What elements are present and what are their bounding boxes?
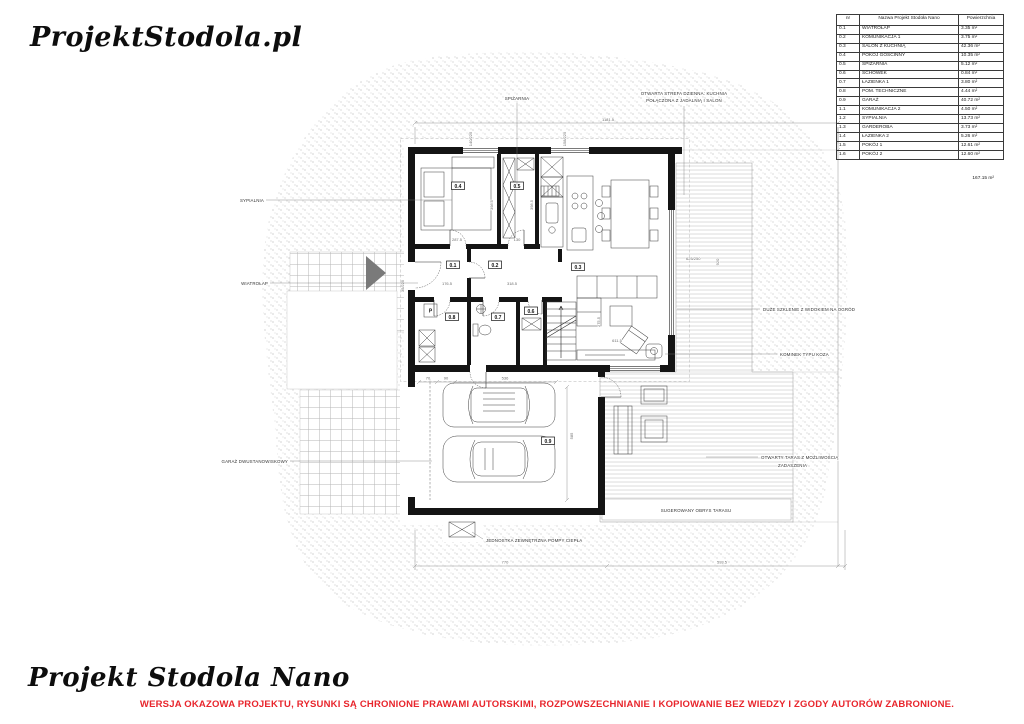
callout-taras-line1: OTWARTY TARAS Z MOŻLIWOŚCIĄ: [761, 455, 838, 460]
table-row: 0.6SCHOWEK0.84 m²: [837, 70, 1004, 79]
header-nr: nr: [837, 15, 860, 26]
cell-nr: 0.6: [837, 70, 860, 79]
cell-nr: 1.3: [837, 124, 860, 133]
cell-name: SPIŻARNIA: [860, 61, 959, 70]
footer-project-logo: Projekt Stodola Nano: [28, 663, 350, 693]
cell-name: POKÓJ GOŚCINNY: [860, 52, 959, 61]
header-name: Nazwa Projekt Stodoła Nano: [860, 15, 959, 26]
dim-room-3985-b: 398.5: [529, 199, 534, 210]
dim-window-b: 158/225: [562, 131, 567, 146]
cell-name: KOMUNIKACJA 2: [860, 106, 959, 115]
cell-area: 13.73 m²: [959, 115, 1004, 124]
cell-nr: 0.1: [837, 25, 860, 34]
table-row: 1.6POKÓJ 212.60 m²: [837, 151, 1004, 160]
total-area: 167.15 m²: [836, 176, 998, 181]
dim-garage-536: 536: [502, 376, 509, 381]
cell-area: 12.61 m²: [959, 142, 1004, 151]
table-row: 0.7ŁAZIENKA 13.80 m²: [837, 79, 1004, 88]
dim-garage-70: 70: [426, 376, 431, 381]
cell-nr: 0.3: [837, 43, 860, 52]
dim-room-3985-a: 398.5: [489, 199, 494, 210]
cell-area: 5.12 m²: [959, 61, 1004, 70]
dim-room-2875: 287.5: [452, 237, 463, 242]
table-row: 0.9GARAŻ40.72 m²: [837, 97, 1004, 106]
room-number-01: 0.1: [450, 263, 457, 269]
dim-garage-90: 90: [444, 376, 449, 381]
callout-taras-line2: ZADASZENIA: [778, 463, 807, 468]
dim-room-2755: 275.5: [596, 316, 601, 327]
cell-nr: 1.1: [837, 106, 860, 115]
cell-nr: 0.8: [837, 88, 860, 97]
cell-name: SALON Z KUCHNIĄ: [860, 43, 959, 52]
table-row: 0.2KOMUNIKACJA 13.75 m²: [837, 34, 1004, 43]
table-row: 1.5POKÓJ 112.61 m²: [837, 142, 1004, 151]
dim-room-6115: 611.5: [612, 338, 622, 343]
callout-pompa-ciepla: JEDNOSTKA ZEWNĘTRZNA POMPY CIEPŁA: [486, 538, 582, 543]
callout-strefa-line1: OTWARTA STREFA DZIENNA: KUCHNIA: [641, 91, 728, 96]
cell-area: 3.35 m²: [959, 25, 1004, 34]
cell-name: POM. TECHNICZNE: [860, 88, 959, 97]
dim-room-3185: 318.5: [507, 281, 518, 286]
cell-nr: 1.4: [837, 133, 860, 142]
room-number-06: 0.6: [528, 309, 535, 315]
room-number-07: 0.7: [495, 315, 502, 321]
cell-nr: 0.5: [837, 61, 860, 70]
header-area: Powierzchnia: [959, 15, 1004, 26]
callout-obrys-tarasu: SUGEROWANY OBRYS TARASU: [661, 508, 732, 513]
cell-area: 0.84 m²: [959, 70, 1004, 79]
cell-nr: 1.5: [837, 142, 860, 151]
cell-nr: 0.9: [837, 97, 860, 106]
cell-nr: 0.7: [837, 79, 860, 88]
dim-garage-585: 585: [569, 432, 574, 439]
callout-sypialnia: SYPIALNIA: [240, 198, 264, 203]
cell-nr: 0.2: [837, 34, 860, 43]
cell-area: 12.60 m²: [959, 151, 1004, 160]
cell-area: 3.80 m²: [959, 79, 1004, 88]
dim-terrace-length: 920: [715, 258, 720, 265]
table-row: 1.2SYPIALNIA13.73 m²: [837, 115, 1004, 124]
callout-kominek: KOMINEK TYPU KOZA: [780, 352, 829, 357]
cell-name: SYPIALNIA: [860, 115, 959, 124]
callout-garaz-dwustanowiskowy: GARAŻ DWUSTANOWISKOWY: [222, 459, 289, 464]
table-row: 1.1KOMUNIKACJA 24.50 m²: [837, 106, 1004, 115]
table-row: 0.8POM. TECHNICZNE4.44 m²: [837, 88, 1004, 97]
room-number-03: 0.3: [575, 265, 582, 271]
callout-szklenie: DUŻE SZKLENIE Z WIDOKIEM NA OGRÓD: [763, 307, 855, 312]
cell-nr: 0.4: [837, 52, 860, 61]
cell-name: GARAŻ: [860, 97, 959, 106]
cell-nr: 1.2: [837, 115, 860, 124]
cell-area: 40.72 m²: [959, 97, 1004, 106]
cell-name: KOMUNIKACJA 1: [860, 34, 959, 43]
cell-name: WIATROŁAP: [860, 25, 959, 34]
cell-name: POKÓJ 1: [860, 142, 959, 151]
dim-window-a: 140/225: [468, 131, 473, 146]
cell-area: 4.44 m²: [959, 88, 1004, 97]
dim-room-1765: 176.5: [442, 281, 453, 286]
room-number-08: 0.8: [449, 315, 456, 321]
room-number-02: 0.2: [492, 263, 499, 269]
table-header-row: nr Nazwa Projekt Stodoła Nano Powierzchn…: [837, 15, 1004, 26]
table-row: 0.5SPIŻARNIA5.12 m²: [837, 61, 1004, 70]
cell-area: 3.73 m²: [959, 124, 1004, 133]
cell-name: POKÓJ 2: [860, 151, 959, 160]
cell-name: ŁAZIENKA 2: [860, 133, 959, 142]
table-row: 0.3SALON Z KUCHNIĄ42.36 m²: [837, 43, 1004, 52]
cell-name: SCHOWEK: [860, 70, 959, 79]
dim-room-130: 130: [514, 237, 521, 242]
table-row: 1.4ŁAZIENKA 25.26 m²: [837, 133, 1004, 142]
dim-entry-door: 35/225: [400, 279, 405, 292]
cell-area: 3.75 m²: [959, 34, 1004, 43]
cell-nr: 1.6: [837, 151, 860, 160]
callout-spizarnia: SPIŻARNIA: [505, 96, 530, 101]
room-schedule-table: nr Nazwa Projekt Stodoła Nano Powierzchn…: [836, 14, 1004, 160]
cell-area: 10.35 m²: [959, 52, 1004, 61]
room-number-09: 0.9: [545, 439, 552, 445]
dim-total-width: 1181.5: [602, 117, 615, 122]
copyright-warning: WERSJA OKAZOWA PROJEKTU, RYSUNKI SĄ CHRO…: [80, 699, 1014, 710]
front-court: [287, 291, 397, 389]
cell-area: 4.50 m²: [959, 106, 1004, 115]
callout-strefa-line2: POŁĄCZONA Z JADALNIĄ I SALON: [646, 98, 722, 103]
cell-area: 42.36 m²: [959, 43, 1004, 52]
dim-glazing: 625/250: [686, 256, 701, 261]
dim-bottom-5935: 593.5: [717, 560, 728, 565]
table-row: 1.3GARDEROBA3.73 m²: [837, 124, 1004, 133]
callout-wiatrolap: WIATROŁAP: [241, 281, 268, 286]
dim-bottom-770: 770: [502, 560, 509, 565]
brand-logo: ProjektStodola.pl: [30, 22, 302, 53]
cell-name: ŁAZIENKA 1: [860, 79, 959, 88]
table-row: 0.1WIATROŁAP3.35 m²: [837, 25, 1004, 34]
floor-plan-sheet: P: [0, 0, 1024, 724]
room-number-04: 0.4: [455, 184, 462, 190]
cell-area: 5.26 m²: [959, 133, 1004, 142]
table-row: 0.4POKÓJ GOŚCINNY10.35 m²: [837, 52, 1004, 61]
cell-name: GARDEROBA: [860, 124, 959, 133]
